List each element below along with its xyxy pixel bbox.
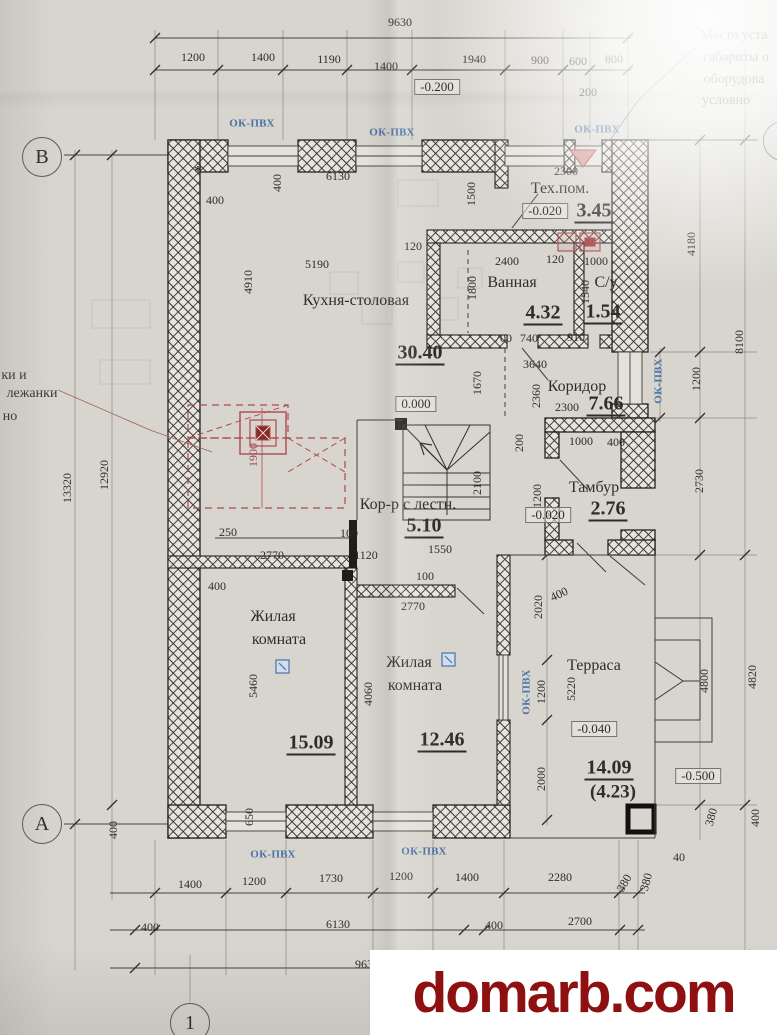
dimension-label: 2100: [471, 471, 483, 495]
dimension-label: 5220: [565, 677, 577, 701]
dimension-label: 9630: [388, 16, 412, 28]
room-name-label: Жилая: [250, 609, 295, 625]
dimension-label: 13320: [61, 473, 73, 503]
room-name-label: Терраса: [567, 658, 621, 674]
dimension-label: 2770: [260, 549, 284, 561]
dimension-label: 2400: [495, 255, 519, 267]
room-area-label: 2.76: [589, 499, 628, 522]
note-text: Место уста: [700, 29, 767, 43]
room-name-label: Кухня-столовая: [303, 293, 409, 309]
watermark-banner: domarb.com: [370, 950, 777, 1035]
dimension-label: 600: [569, 55, 587, 67]
room-area-label: 1.54: [584, 302, 623, 325]
room-area-label: 7.66: [587, 394, 626, 417]
note-text: но: [3, 410, 18, 424]
room-name-label: комната: [388, 678, 442, 694]
dimension-label: 1200: [389, 870, 413, 882]
elevation-mark: -0.020: [522, 203, 568, 219]
dimension-label: 40: [673, 851, 685, 863]
axis-marker: [763, 121, 777, 161]
dimension-label: 1400: [178, 878, 202, 890]
dimension-label: 740: [520, 332, 538, 344]
dimension-label: 4910: [242, 270, 254, 294]
dimension-label: 200: [579, 86, 597, 98]
room-name-label: Жилая: [386, 655, 431, 671]
dimension-label: 1200: [242, 875, 266, 887]
dimension-label: 1200: [690, 367, 702, 391]
dimension-label: 3640: [523, 358, 547, 370]
dimension-label: 1670: [471, 371, 483, 395]
elevation-mark: -0.500: [675, 768, 721, 784]
dimension-label: 1940: [462, 53, 486, 65]
dimension-label: 400: [749, 809, 761, 827]
room-name-label: Ванная: [487, 275, 536, 291]
room-area-label: 3.45: [575, 201, 614, 224]
window-tag-label: ОК-ПВХ: [229, 119, 275, 130]
dimension-label: 200: [513, 434, 525, 452]
room-area-label: 30.40: [396, 343, 445, 366]
room-name-label: С/у: [594, 275, 617, 291]
dimension-label: 2000: [535, 767, 547, 791]
dimension-label: 1800: [466, 276, 478, 300]
dimension-label: 2280: [548, 871, 572, 883]
room-name-label: Тех.пом.: [531, 181, 589, 197]
dimension-label: 1000: [584, 255, 608, 267]
room-area-label: 14.09: [585, 758, 634, 781]
dimension-label: 12920: [98, 460, 110, 490]
dimension-label: 400: [607, 436, 625, 448]
note-text: лежанки: [7, 387, 58, 401]
dimension-label: 1550: [428, 543, 452, 555]
dimension-label: 900: [531, 54, 549, 66]
dimension-label: 6130: [326, 170, 350, 182]
dimension-label: 400: [208, 580, 226, 592]
dimension-label: 380: [703, 807, 719, 827]
watermark-text: domarb.com: [412, 960, 734, 1026]
elevation-mark: 0.000: [395, 396, 436, 412]
room-area-label: 15.09: [287, 733, 336, 756]
window-tag-label: ОК-ПВХ: [369, 128, 415, 139]
dimension-label: 1400: [374, 60, 398, 72]
window-tag-label: ОК-ПВХ: [574, 125, 620, 136]
dimension-label: 400: [107, 821, 119, 839]
elevation-mark: -0.020: [525, 507, 571, 523]
note-text: оборудова: [704, 73, 765, 87]
dimension-label: 1200: [531, 484, 543, 508]
dimension-label: 1900: [247, 443, 259, 467]
dimension-label: 6130: [326, 918, 350, 930]
room-area-label: 4.32: [524, 303, 563, 326]
room-area-label: 5.10: [405, 516, 444, 539]
dimension-label: 2020: [532, 595, 544, 619]
dimension-label: 2300: [555, 401, 579, 413]
dimension-label: 650: [243, 808, 255, 826]
dimension-label: *: [194, 165, 202, 180]
room-name-label: Кор-р с лестн.: [360, 497, 456, 513]
dimension-label: 1000: [569, 435, 593, 447]
window-tag-label: ОК-ПВХ: [250, 850, 296, 861]
dimension-label: 400: [141, 921, 159, 933]
dimension-label: 1730: [319, 872, 343, 884]
dimension-label: 400: [548, 585, 569, 603]
note-text: ки и: [1, 369, 26, 383]
window-tag-label: ОК-ПВХ: [654, 358, 665, 404]
dimension-label: 2730: [693, 469, 705, 493]
dimension-label: 400: [485, 919, 503, 931]
dimension-label: 400: [271, 174, 283, 192]
axis-marker: В: [22, 137, 62, 177]
dimension-label: 1190: [317, 53, 341, 65]
dimension-label: 250: [219, 526, 237, 538]
elevation-mark: -0.040: [571, 721, 617, 737]
dimension-label: 2300: [554, 165, 578, 177]
dimension-label: 4820: [746, 665, 758, 689]
dimension-label: 4060: [362, 682, 374, 706]
dimension-label: 380: [614, 872, 633, 894]
dimension-label: 120: [546, 253, 564, 265]
dimension-label: 1200: [181, 51, 205, 63]
dimension-label: 2360: [530, 384, 542, 408]
room-area-label: 12.46: [418, 730, 467, 753]
dimension-label: 400: [206, 194, 224, 206]
axis-marker: А: [22, 804, 62, 844]
dimension-label: 1200: [535, 680, 547, 704]
note-text: габариты о: [703, 51, 769, 65]
dimension-label: 5460: [247, 674, 259, 698]
dimension-label: 1500: [465, 182, 477, 206]
dimension-label: 910: [567, 331, 585, 343]
dimension-label: 120: [404, 240, 422, 252]
dimension-label: 2700: [568, 915, 592, 927]
window-tag-label: ОК-ПВХ: [401, 847, 447, 858]
room-area-label: (4.23): [590, 783, 636, 802]
dimension-label: 100: [340, 527, 358, 539]
dimension-label: 5190: [305, 258, 329, 270]
dimension-label: 1400: [251, 51, 275, 63]
dimension-label: 1400: [455, 871, 479, 883]
labels-layer: 9630120014001190140019409006008002002300…: [0, 0, 777, 1035]
window-tag-label: ОК-ПВХ: [522, 669, 533, 715]
dimension-label: 4800: [698, 669, 710, 693]
axis-marker: 1: [170, 1003, 210, 1035]
dimension-label: 700: [494, 332, 512, 344]
dimension-label: 380: [638, 872, 654, 892]
dimension-label: 100: [416, 570, 434, 582]
dimension-label: 8100: [733, 330, 745, 354]
elevation-mark: -0.200: [414, 79, 460, 95]
dimension-label: 4180: [685, 232, 697, 256]
dimension-label: 2770: [401, 600, 425, 612]
room-name-label: комната: [252, 632, 306, 648]
floorplan-photo: 9630120014001190140019409006008002002300…: [0, 0, 777, 1035]
note-text: условно: [702, 94, 750, 108]
dimension-label: 800: [605, 53, 623, 65]
room-name-label: Тамбур: [569, 480, 619, 496]
dimension-label: 1120: [354, 549, 378, 561]
